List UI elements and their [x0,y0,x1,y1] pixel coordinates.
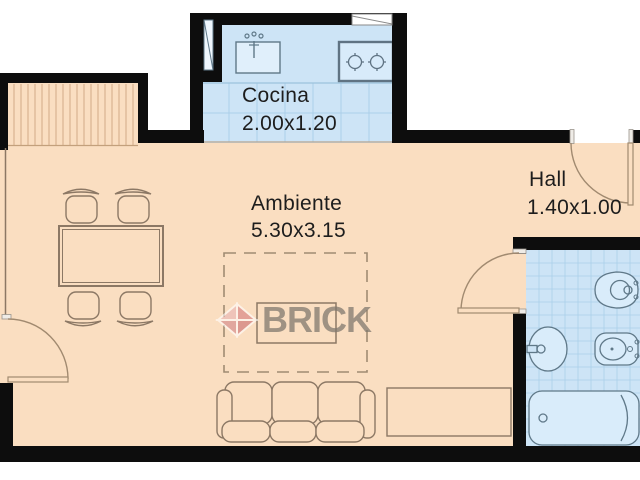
duct-shaft [204,20,213,70]
watermark-text: BRICK [262,299,371,341]
living-label: Ambiente [251,192,342,216]
kitchen-window [352,14,392,25]
side-table [387,388,511,436]
kitchen-dimensions: 2.00x1.20 [242,112,337,136]
toilet [595,272,638,308]
sofa [217,382,375,442]
stove [339,42,393,81]
hall-label: Hall [529,168,566,192]
kitchen-label: Cocina [242,84,309,108]
hall-dimensions: 1.40x1.00 [527,196,622,220]
living-dimensions: 5.30x3.15 [251,219,346,243]
bidet [595,333,639,365]
bathtub [529,391,639,445]
floor-plan: Cocina 2.00x1.20 Ambiente 5.30x3.15 Hall… [0,0,640,480]
balcony-hatch [8,83,138,146]
